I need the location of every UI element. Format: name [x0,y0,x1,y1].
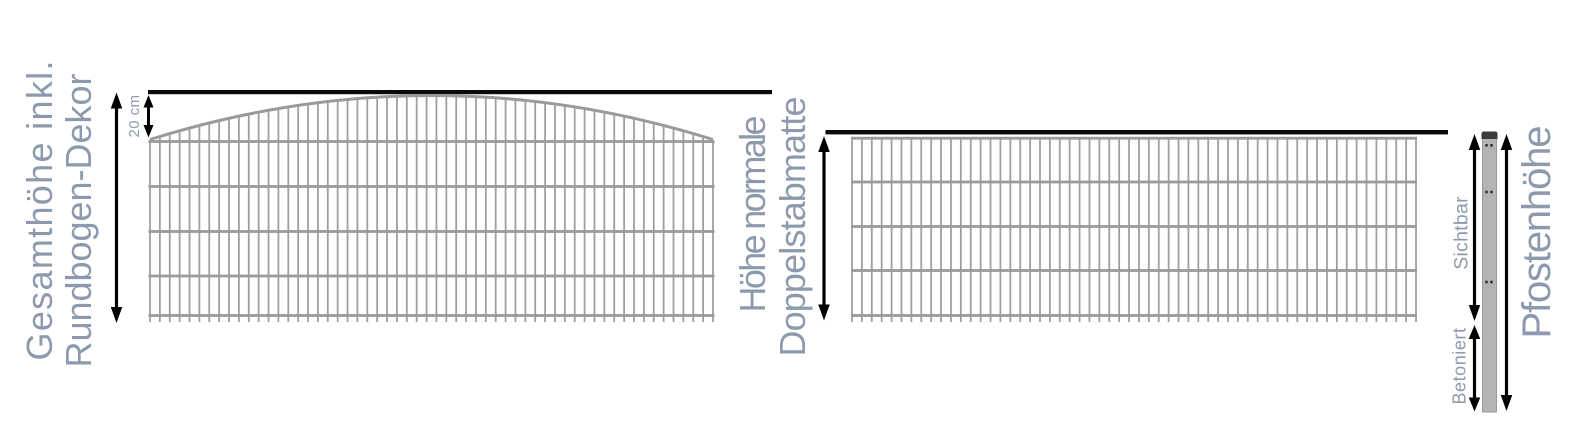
svg-text:Pfostenhöhe: Pfostenhöhe [1515,126,1559,339]
svg-text:20 cm: 20 cm [126,95,143,138]
svg-text:Betoniert: Betoniert [1450,328,1470,405]
svg-text:Doppelstabmatte: Doppelstabmatte [772,97,813,357]
svg-text:Gesamthöhe inkl.: Gesamthöhe inkl. [19,61,60,361]
svg-text:Höhe normale: Höhe normale [732,116,773,313]
svg-text:Rundbogen-Dekor: Rundbogen-Dekor [58,74,99,368]
svg-text:Sichtbar: Sichtbar [1451,196,1473,270]
